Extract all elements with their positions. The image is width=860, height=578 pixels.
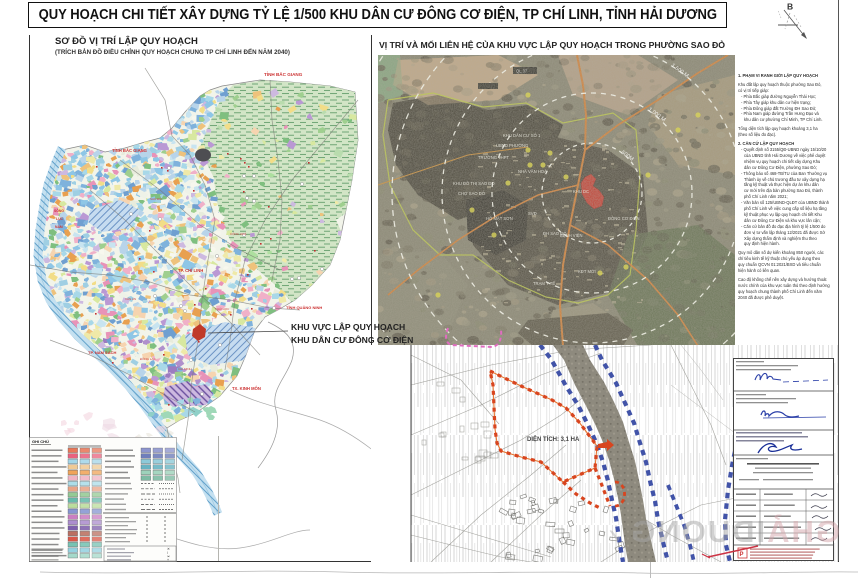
svg-text:KHU DC: KHU DC xyxy=(573,189,589,194)
svg-text:SVĐ: SVĐ xyxy=(528,211,537,216)
svg-text:DIỆN TÍCH: 3,1 HA: DIỆN TÍCH: 3,1 HA xyxy=(527,435,580,443)
svg-text:SÔNG: SÔNG xyxy=(54,208,64,213)
svg-text:NHÀ VĂN HOÁ: NHÀ VĂN HOÁ xyxy=(518,169,547,174)
svg-text:GHI CHÚ: GHI CHÚ xyxy=(32,439,49,444)
svg-text:KĐT MỚI: KĐT MỚI xyxy=(578,269,596,274)
svg-text:QL 37: QL 37 xyxy=(516,69,528,74)
svg-text:+: + xyxy=(167,558,169,562)
svg-text:SAO ĐỎ: SAO ĐỎ xyxy=(150,196,162,201)
svg-text:TRẠM Y TẾ: TRẠM Y TẾ xyxy=(533,281,555,286)
svg-text:CHÍ MINH: CHÍ MINH xyxy=(178,367,192,371)
svg-text:NAM: NAM xyxy=(55,225,63,229)
svg-text:HỒ MẬT SƠN: HỒ MẬT SƠN xyxy=(486,216,513,221)
svg-text:TỈNH QUẢNG NINH: TỈNH QUẢNG NINH xyxy=(286,305,322,310)
svg-text:TX. KINH MÔN: TX. KINH MÔN xyxy=(232,386,261,391)
svg-text:LỤC: LỤC xyxy=(56,217,64,221)
svg-text:TP. CHÍ LINH: TP. CHÍ LINH xyxy=(178,268,203,273)
svg-text:B: B xyxy=(787,2,793,12)
svg-text:CỘNG HOÀ: CỘNG HOÀ xyxy=(230,231,246,236)
svg-text:VĂN AN: VĂN AN xyxy=(125,297,136,301)
svg-text:KHU ĐÔ THỊ SAO ĐỎ: KHU ĐÔ THỊ SAO ĐỎ xyxy=(453,181,495,186)
svg-text:TỈNH BẮC GIANG: TỈNH BẮC GIANG xyxy=(264,70,303,77)
svg-text:BỆNH VIỆN: BỆNH VIỆN xyxy=(560,233,583,238)
svg-text:TRƯỜNG THPT: TRƯỜNG THPT xyxy=(478,155,509,160)
svg-text:ĐỒNG LẠC: ĐỒNG LẠC xyxy=(140,356,157,361)
svg-text:TỈNH BẮC GIANG: TỈNH BẮC GIANG xyxy=(112,148,147,153)
svg-text:CHỢ SAO ĐỎ: CHỢ SAO ĐỎ xyxy=(458,191,486,196)
svg-text:TP. NAM SÁCH: TP. NAM SÁCH xyxy=(88,350,116,355)
svg-text:UBND PHƯỜNG: UBND PHƯỜNG xyxy=(496,143,528,148)
svg-text:ĐỒNG CƠ ĐIỆN: ĐỒNG CƠ ĐIỆN xyxy=(608,216,640,221)
svg-text:THÁI HỌC: THÁI HỌC xyxy=(215,307,230,311)
svg-text:KHU DÂN CƯ SỐ 1: KHU DÂN CƯ SỐ 1 xyxy=(503,133,541,138)
